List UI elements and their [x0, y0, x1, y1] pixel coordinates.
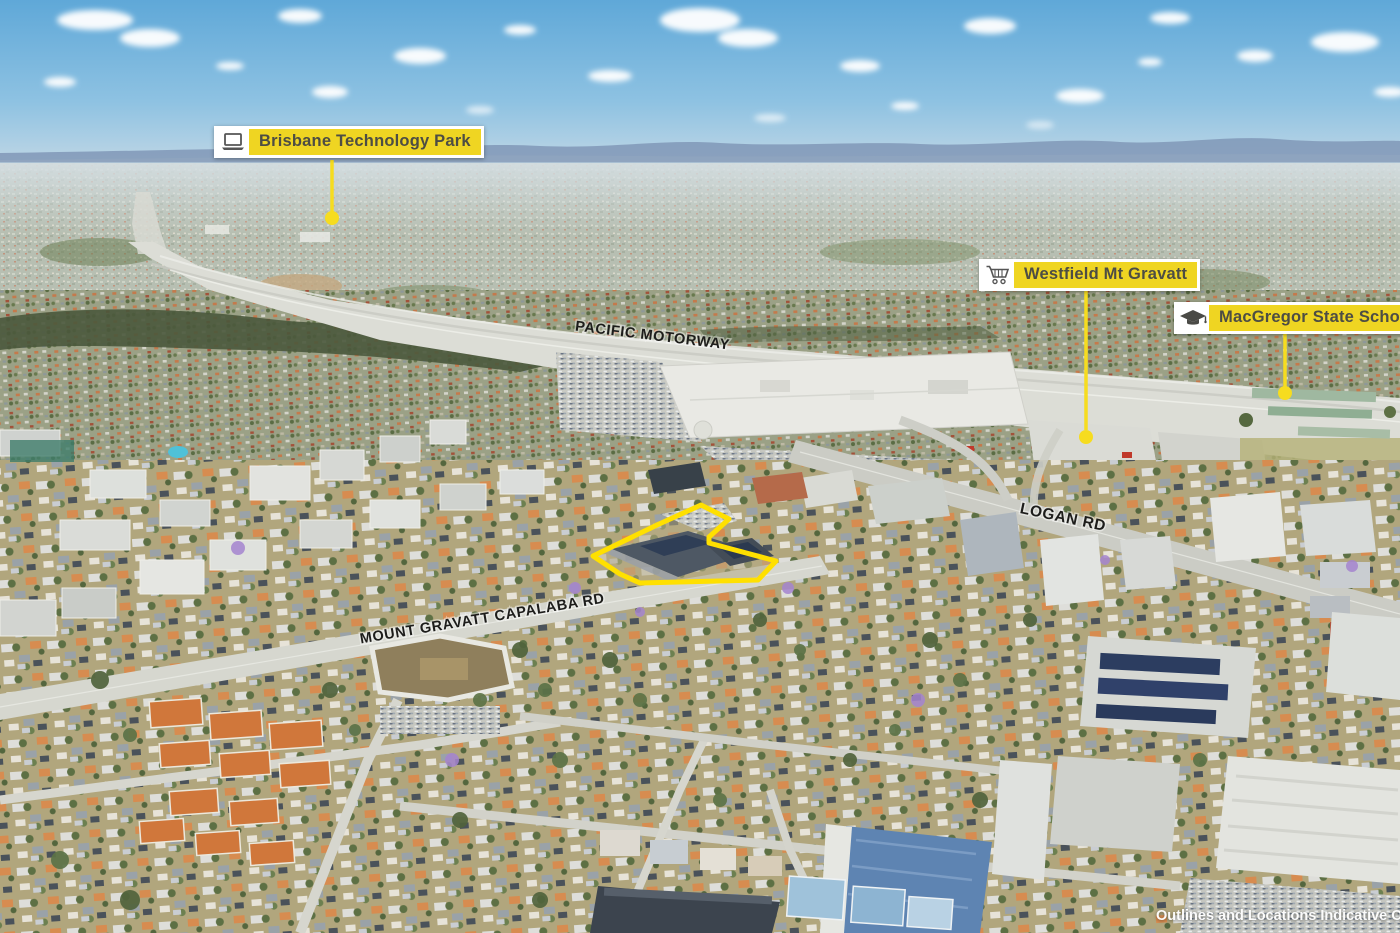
- leader-dot: [1079, 430, 1093, 444]
- laptop-icon: [217, 129, 249, 155]
- aerial-photo-stage: PACIFIC MOTORWAY LOGAN RD MOUNT GRAVATT …: [0, 0, 1400, 933]
- sky: [0, 0, 1400, 185]
- callout-brisbane-technology-park: Brisbane Technology Park: [214, 126, 484, 158]
- graduation-cap-icon: [1177, 305, 1209, 331]
- aerial-scene: PACIFIC MOTORWAY LOGAN RD MOUNT GRAVATT …: [0, 0, 1400, 933]
- callout-label: MacGregor State School: [1209, 305, 1400, 331]
- office-building-center: [372, 636, 512, 734]
- callout-label: Westfield Mt Gravatt: [1014, 262, 1197, 288]
- callout-macgregor-state-school: MacGregor State School: [1174, 302, 1400, 334]
- leader-dot: [1278, 386, 1292, 400]
- callout-label: Brisbane Technology Park: [249, 129, 481, 155]
- disclaimer-text: Outlines and Locations Indicative Only: [1156, 908, 1400, 924]
- shopping-cart-icon: [982, 262, 1014, 288]
- leader-dot: [325, 211, 339, 225]
- callout-westfield-mt-gravatt: Westfield Mt Gravatt: [979, 259, 1200, 291]
